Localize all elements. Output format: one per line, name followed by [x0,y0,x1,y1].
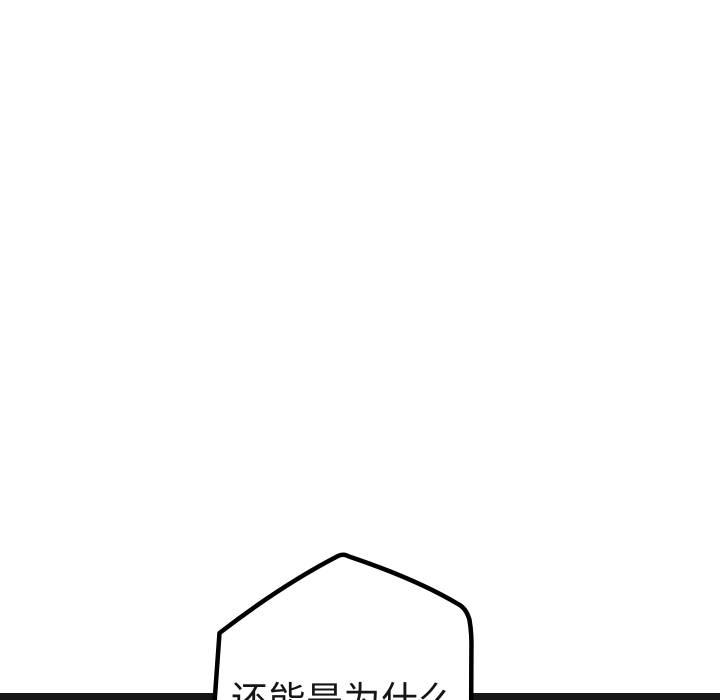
speech-bubble-text: 还能是为什么 [216,680,471,700]
comic-panel: 还能是为什么 [0,0,720,700]
speech-bubble [0,0,720,700]
speech-bubble-outline [215,555,472,700]
